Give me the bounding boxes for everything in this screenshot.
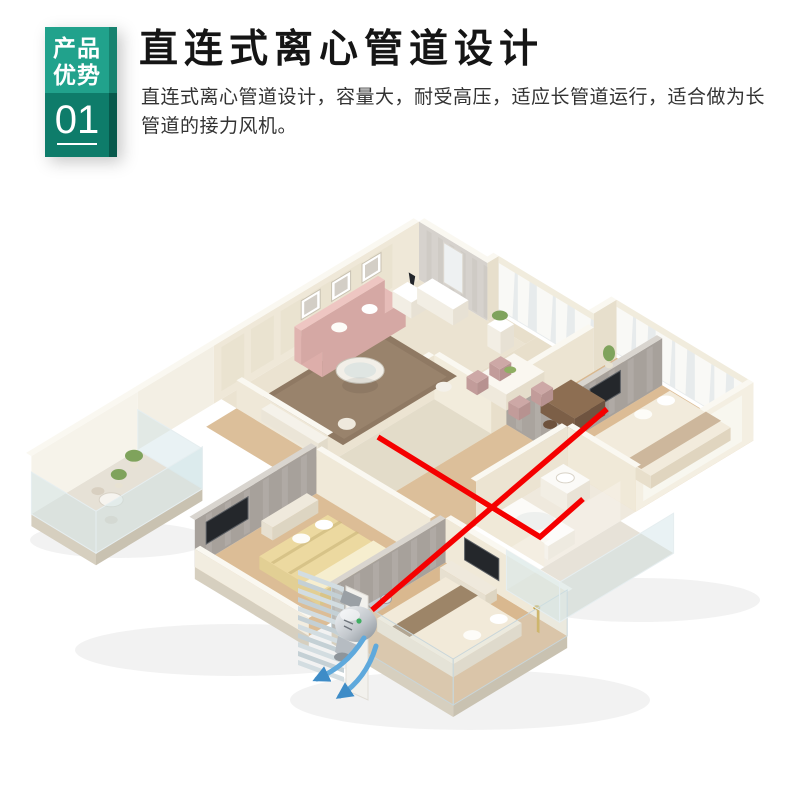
product-feature-page: 产品优势 01 直连式离心管道设计 直连式离心管道设计，容量大，耐受高压，适应长…	[0, 0, 790, 792]
floorplan-illustration	[0, 0, 790, 792]
